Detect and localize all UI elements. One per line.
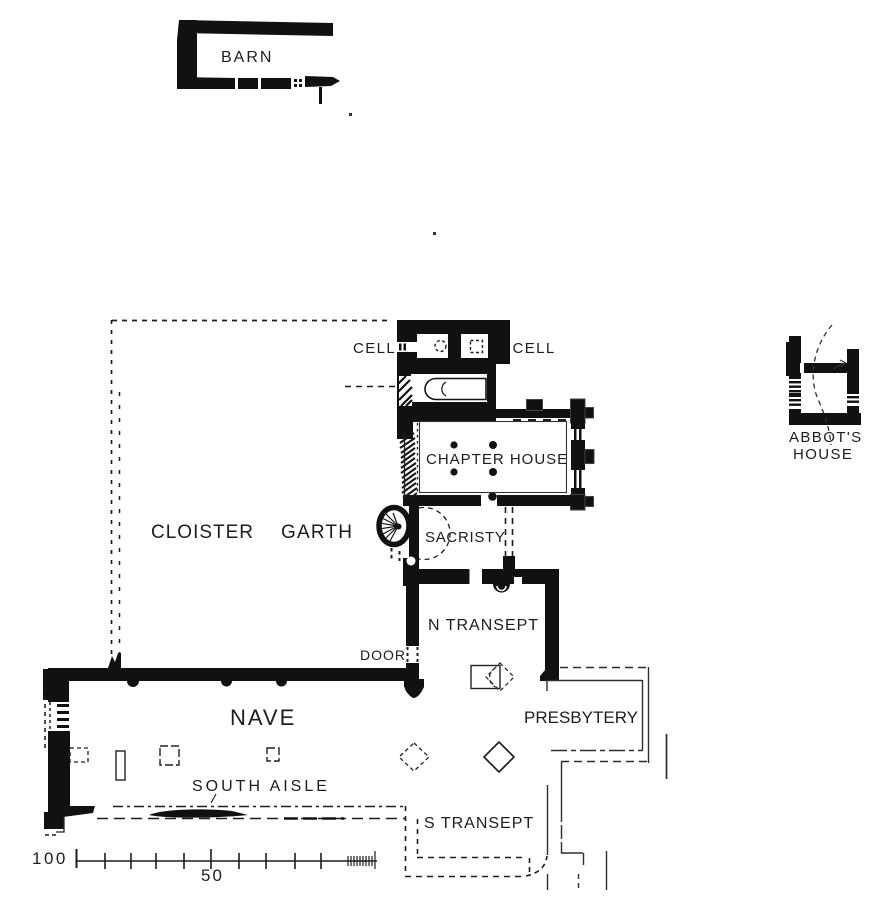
svg-text:GARTH: GARTH xyxy=(281,522,353,543)
svg-text:100: 100 xyxy=(32,849,68,868)
svg-text:CHAPTER HOUSE: CHAPTER HOUSE xyxy=(426,451,568,468)
svg-text:SOUTH AISLE: SOUTH AISLE xyxy=(192,778,330,795)
svg-text:SACRISTY: SACRISTY xyxy=(425,529,506,546)
svg-text:50: 50 xyxy=(201,866,224,885)
svg-text:DOOR: DOOR xyxy=(360,647,406,663)
svg-text:CLOISTER: CLOISTER xyxy=(151,522,254,543)
svg-text:CELL: CELL xyxy=(353,340,396,357)
svg-text:S TRANSEPT: S TRANSEPT xyxy=(424,815,534,832)
svg-text:BARN: BARN xyxy=(221,49,273,66)
svg-text:ABBOT'S: ABBOT'S xyxy=(789,429,863,446)
svg-text:N TRANSEPT: N TRANSEPT xyxy=(428,617,539,634)
svg-text:PRESBYTERY: PRESBYTERY xyxy=(524,708,638,727)
svg-text:NAVE: NAVE xyxy=(230,705,296,730)
svg-text:HOUSE: HOUSE xyxy=(793,446,853,463)
svg-text:CELL: CELL xyxy=(513,340,556,357)
